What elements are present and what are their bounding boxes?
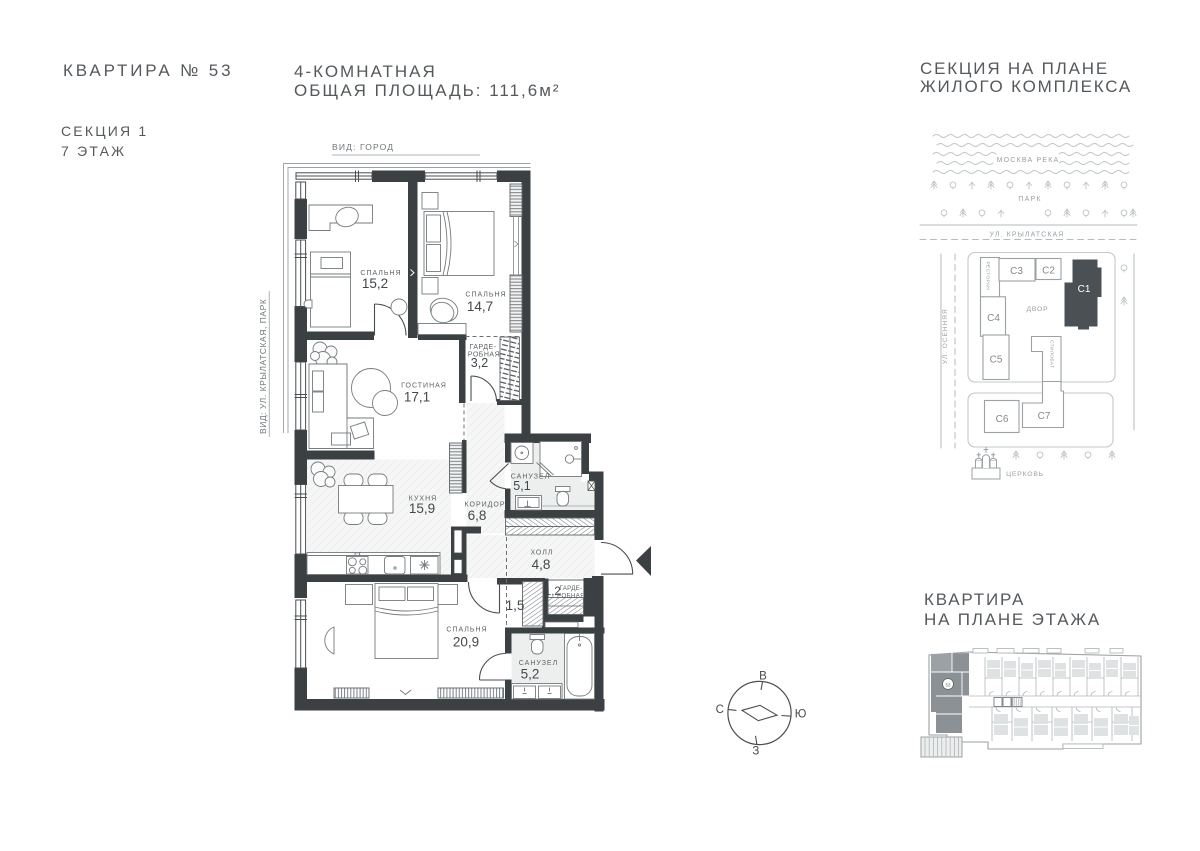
svg-text:ПАРК: ПАРК [1018,196,1041,203]
svg-text:ВИД: ГОРОД: ВИД: ГОРОД [332,142,394,152]
svg-text:5,2: 5,2 [521,667,540,682]
svg-text:СТИЛОБАТ: СТИЛОБАТ [1049,340,1055,368]
svg-text:С2: С2 [1042,266,1055,277]
svg-text:53: 53 [945,683,951,688]
svg-text:15,9: 15,9 [409,501,435,516]
svg-text:С7: С7 [1038,411,1051,422]
svg-text:ГОСТИНАЯ: ГОСТИНАЯ [401,383,447,390]
svg-text:З: З [752,745,759,757]
svg-text:СПАЛЬНЯ: СПАЛЬНЯ [465,292,506,299]
svg-text:СПАЛЬНЯ: СПАЛЬНЯ [446,627,487,634]
svg-text:ГАРДЕ-: ГАРДЕ- [470,344,497,351]
svg-text:ДВОР: ДВОР [1027,306,1049,313]
svg-text:1,5: 1,5 [506,598,525,613]
svg-text:4,8: 4,8 [532,557,551,572]
svg-text:УЛ. КРЫЛАТСКАЯ: УЛ. КРЫЛАТСКАЯ [990,232,1065,239]
svg-text:ЦЕРКОВЬ: ЦЕРКОВЬ [1006,471,1044,478]
svg-text:В: В [759,671,767,683]
svg-text:6,8: 6,8 [468,508,487,523]
svg-text:С3: С3 [1010,266,1023,277]
svg-text:ХОЛЛ: ХОЛЛ [531,550,554,557]
svg-text:УЛ. ОСЕННЯЯ: УЛ. ОСЕННЯЯ [942,308,949,364]
svg-text:20,9: 20,9 [453,635,479,650]
svg-text:С5: С5 [990,355,1003,366]
svg-text:С1: С1 [1078,284,1091,295]
svg-text:14,7: 14,7 [467,299,493,314]
svg-text:С4: С4 [987,313,1000,324]
svg-text:С: С [716,704,724,716]
svg-text:МОСКВА РЕКА: МОСКВА РЕКА [997,157,1060,164]
svg-text:3,2: 3,2 [471,356,488,370]
svg-text:5,1: 5,1 [513,479,530,493]
svg-text:17,1: 17,1 [404,390,430,405]
svg-text:РОБНАЯ: РОБНАЯ [557,592,585,599]
svg-text:ГАРДЕ-: ГАРДЕ- [560,585,583,592]
svg-text:С6: С6 [996,414,1009,425]
svg-text:15,2: 15,2 [362,276,388,291]
svg-text:Ю: Ю [795,709,807,721]
svg-text:ВИД: УЛ. КРЫЛАТСКАЯ, ПАРК: ВИД: УЛ. КРЫЛАТСКАЯ, ПАРК [258,299,268,434]
svg-text:РЕСТОРАН: РЕСТОРАН [985,262,991,291]
